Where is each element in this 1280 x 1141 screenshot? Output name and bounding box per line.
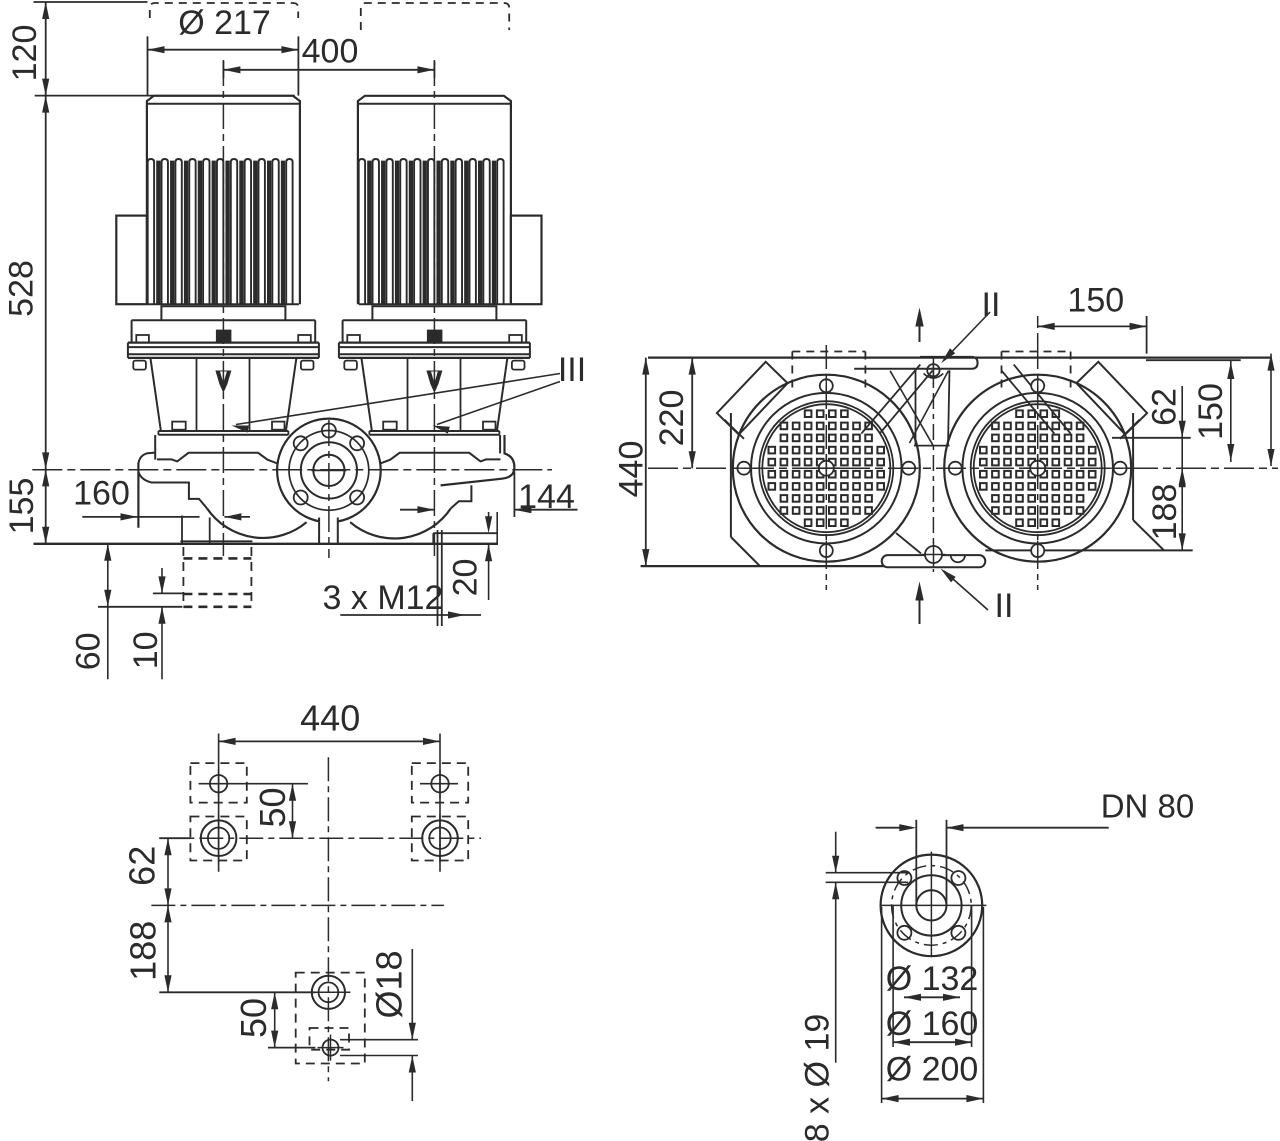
svg-text:150: 150 — [1192, 383, 1230, 440]
svg-text:Ø 132: Ø 132 — [886, 960, 979, 998]
svg-text:Ø 200: Ø 200 — [886, 1051, 979, 1089]
svg-text:440: 440 — [613, 441, 651, 498]
svg-text:62: 62 — [1146, 388, 1184, 426]
svg-text:Ø 217: Ø 217 — [178, 4, 271, 42]
svg-text:Ø 160: Ø 160 — [886, 1005, 979, 1043]
svg-text:155: 155 — [3, 478, 41, 535]
svg-text:DN 80: DN 80 — [1101, 788, 1195, 825]
svg-text:160: 160 — [73, 475, 130, 513]
svg-text:440: 440 — [300, 698, 360, 739]
svg-text:62: 62 — [122, 846, 163, 886]
svg-text:III: III — [558, 351, 586, 389]
svg-text:8 x Ø 19: 8 x Ø 19 — [799, 1014, 837, 1141]
svg-text:220: 220 — [653, 390, 691, 447]
svg-text:400: 400 — [302, 33, 359, 71]
svg-text:Ø18: Ø18 — [369, 950, 410, 1018]
svg-text:50: 50 — [252, 787, 293, 827]
svg-text:50: 50 — [233, 998, 274, 1038]
svg-text:528: 528 — [3, 260, 41, 317]
svg-text:188: 188 — [122, 921, 163, 981]
svg-text:20: 20 — [447, 559, 485, 597]
svg-text:II: II — [995, 587, 1014, 625]
svg-text:188: 188 — [1146, 484, 1184, 541]
svg-text:60: 60 — [70, 632, 108, 670]
svg-text:144: 144 — [518, 478, 575, 516]
svg-text:3 x M12: 3 x M12 — [323, 579, 444, 617]
svg-text:10: 10 — [127, 631, 165, 669]
svg-text:120: 120 — [6, 25, 44, 82]
svg-text:150: 150 — [1067, 281, 1124, 319]
svg-text:II: II — [982, 286, 1001, 324]
